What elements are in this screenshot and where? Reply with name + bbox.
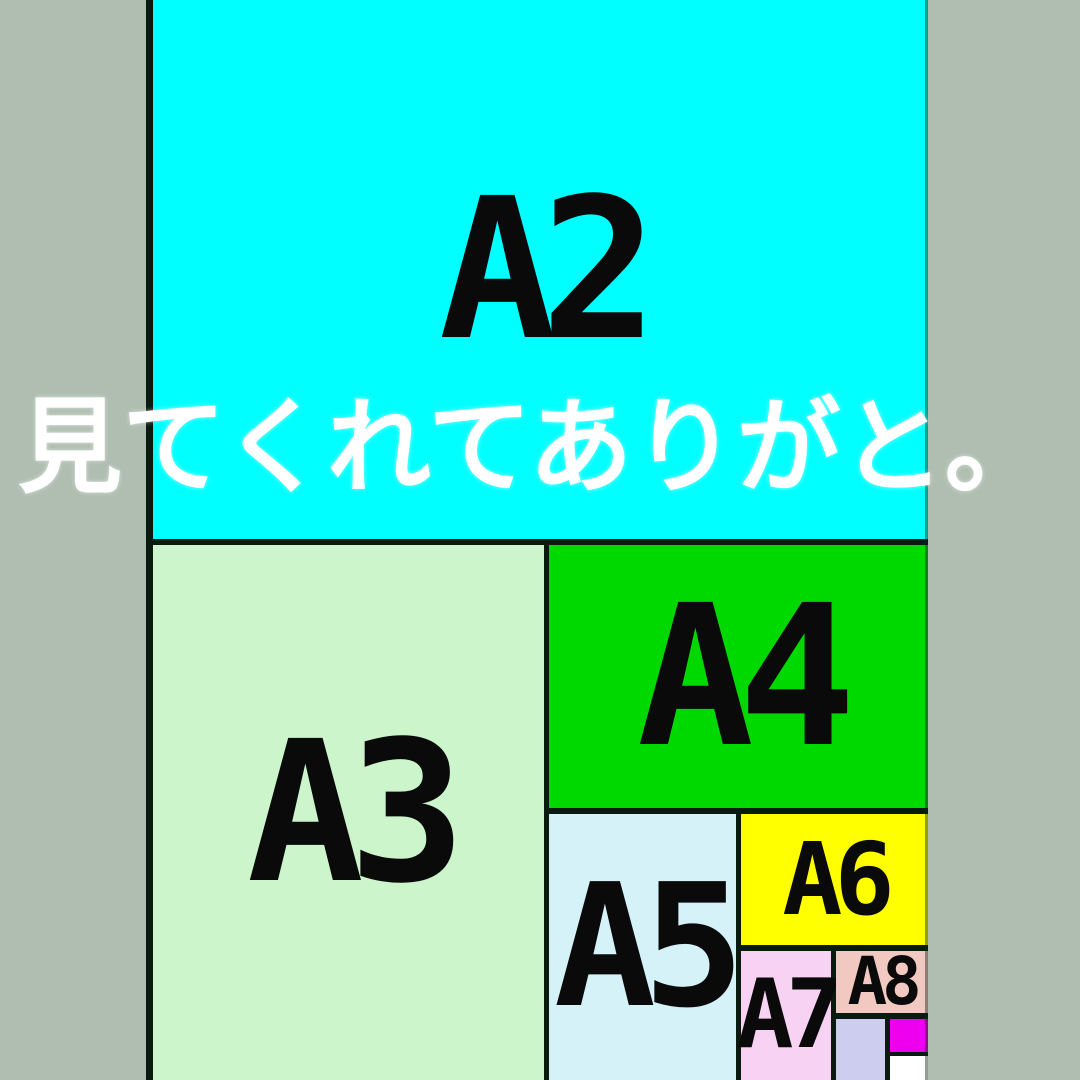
paper-size-diagram: A2 A3 A4 A5 A6 A7 A8 見てくれてありがと。 [0, 0, 1080, 1080]
paper-a7-label: A7 [736, 968, 835, 1063]
paper-a6: A6 [741, 814, 928, 951]
paper-a6-label: A6 [782, 830, 886, 930]
diagram-right-edge-divider [925, 0, 928, 1080]
paper-a8-label: A8 [848, 949, 917, 1015]
paper-a11 [890, 1056, 928, 1080]
paper-a9 [836, 1019, 890, 1080]
paper-a3: A3 [146, 545, 549, 1080]
caption-text: 見てくれてありがと。 [18, 393, 1049, 502]
paper-a7: A7 [741, 951, 836, 1080]
paper-a3-label: A3 [247, 715, 451, 910]
paper-a8: A8 [836, 951, 928, 1019]
paper-a4: A4 [549, 545, 928, 814]
paper-a5: A5 [549, 814, 741, 1080]
paper-a5-label: A5 [554, 862, 732, 1032]
paper-a2-label: A2 [439, 172, 643, 367]
paper-a10 [890, 1019, 928, 1056]
paper-a4-label: A4 [637, 579, 841, 774]
